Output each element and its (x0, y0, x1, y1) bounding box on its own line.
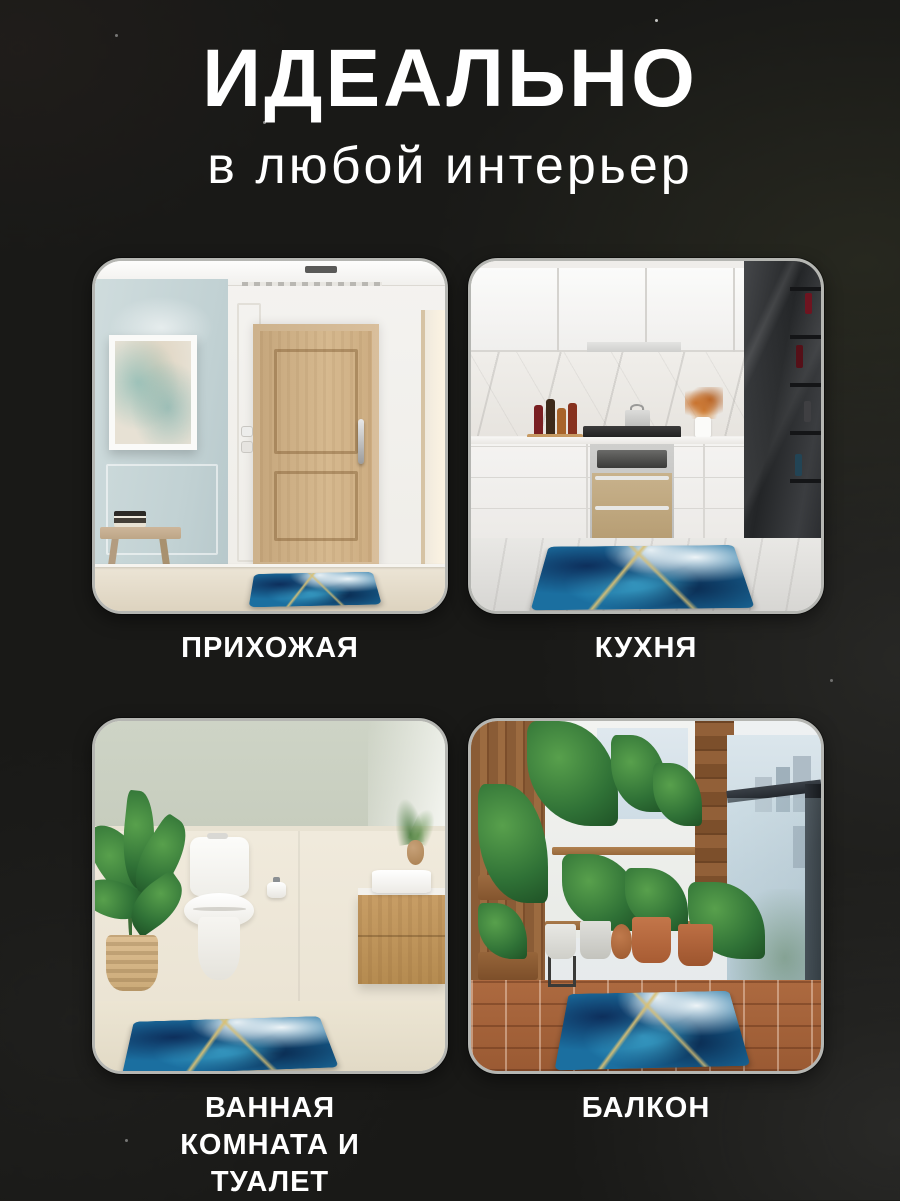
caption-bathroom: ВАННАЯ КОМНАТА И ТУАЛЕТ (130, 1090, 410, 1201)
kitchen-wine-bottle (805, 293, 812, 314)
photo-card-bathroom (92, 718, 448, 1074)
page-title: ИДЕАЛЬНО (0, 38, 900, 120)
hallway-door-panel (274, 471, 358, 541)
balcony-terracotta-pot (632, 917, 671, 963)
balcony-pot (545, 924, 577, 959)
kitchen-countertop (471, 437, 744, 445)
hallway-books (114, 511, 146, 527)
caption-hallway: ПРИХОЖАЯ (120, 630, 420, 708)
kitchen-cabinet-seams (471, 268, 744, 352)
kitchen-wine-bottle (796, 345, 803, 368)
header: ИДЕАЛЬНО в любой интерьер (0, 0, 900, 196)
photo-bathroom (95, 721, 445, 1071)
kitchen-oven-handle (595, 476, 669, 480)
photo-card-balcony (468, 718, 824, 1074)
bathroom-vanity-drawer-line (358, 935, 446, 938)
kitchen-bottle (557, 408, 566, 436)
bathroom-vanity (358, 893, 446, 984)
balcony-plant-stand (548, 956, 576, 988)
hallway-art-frame (109, 335, 197, 451)
hallway-door-handle (358, 419, 364, 465)
toilet-paper-roll (267, 882, 286, 898)
grid-cell-balcony: БАЛКОН (468, 718, 824, 1201)
kitchen-oven-window (597, 450, 667, 468)
bathroom-sink (372, 870, 432, 893)
bathroom-marble-mat (122, 1016, 339, 1074)
hallway-bench (100, 527, 181, 539)
balcony-pot (580, 921, 612, 960)
hallway-baseboard (95, 564, 445, 568)
bathroom-tile-seam (298, 831, 300, 1003)
caption-kitchen: КУХНЯ (496, 630, 796, 708)
kitchen-wine-bottle (795, 454, 802, 477)
hallway-light-switch (241, 441, 253, 453)
toilet-seat-line (193, 907, 246, 911)
hallway-art-canvas (115, 341, 191, 445)
hallway-ceiling-vent (305, 266, 337, 273)
grid-cell-bathroom: ВАННАЯ КОМНАТА И ТУАЛЕТ (92, 718, 448, 1201)
bathroom-vase (407, 840, 425, 865)
kitchen-marble-mat (530, 545, 754, 610)
photo-hallway (95, 261, 445, 611)
photo-card-kitchen (468, 258, 824, 614)
page-subtitle: в любой интерьер (0, 136, 900, 196)
toilet-base (198, 917, 240, 980)
hallway-side-doorway (421, 310, 446, 569)
kitchen-vase (695, 417, 711, 438)
hallway-marble-mat (249, 572, 382, 607)
toilet-flush-button (207, 833, 228, 839)
toilet-tank (190, 837, 250, 897)
hallway-door-panel (274, 349, 358, 454)
photo-card-hallway (92, 258, 448, 614)
balcony-terracotta-pot (678, 924, 713, 966)
hallway-ceiling-grille (242, 282, 382, 286)
hallway-light-switch (241, 426, 253, 438)
photo-grid: ПРИХОЖАЯ (92, 258, 824, 1201)
grid-cell-kitchen: КУХНЯ (468, 258, 824, 708)
bathroom-wicker-pot (106, 935, 159, 991)
kitchen-bottle (534, 405, 543, 437)
balcony-clay-jug (611, 924, 632, 959)
kitchen-bottle (568, 403, 577, 436)
kitchen-flowers (685, 387, 724, 419)
promo-banner: { "header": { "title": "ИДЕАЛЬНО", "subt… (0, 0, 900, 1200)
kitchen-oven-handle (595, 506, 669, 510)
grid-cell-hallway: ПРИХОЖАЯ (92, 258, 448, 708)
caption-balcony: БАЛКОН (496, 1090, 796, 1168)
photo-balcony (471, 721, 821, 1071)
photo-kitchen (471, 261, 821, 611)
kitchen-bottle (546, 399, 554, 436)
kitchen-wine-bottle (804, 401, 811, 422)
balcony-marble-mat (554, 990, 750, 1070)
